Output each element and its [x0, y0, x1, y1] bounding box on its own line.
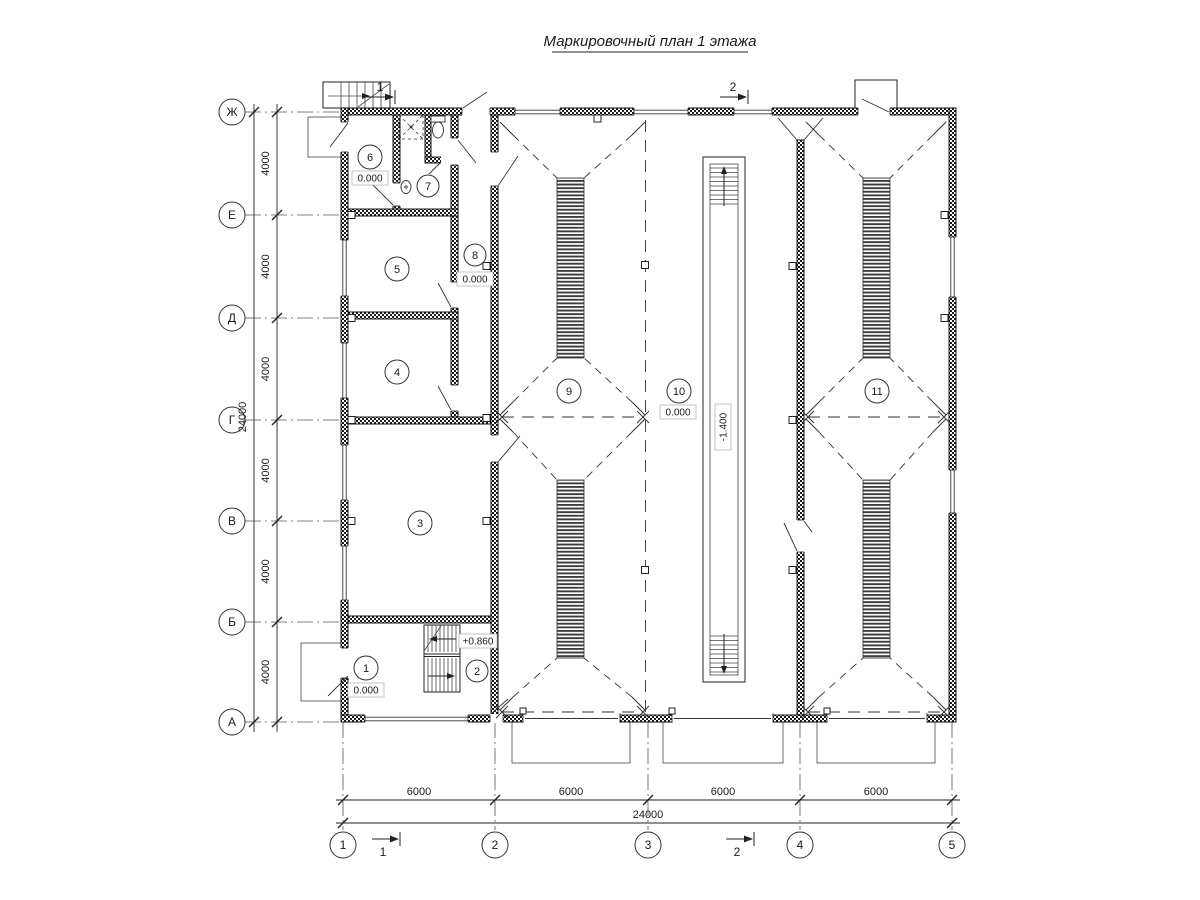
- window: [634, 107, 688, 116]
- room-tag-9: 9: [557, 379, 581, 403]
- svg-text:2: 2: [474, 666, 480, 678]
- svg-text:10: 10: [673, 386, 685, 398]
- door: [858, 99, 890, 116]
- svg-text:В: В: [228, 514, 236, 528]
- svg-text:0.000: 0.000: [462, 275, 487, 286]
- svg-text:2: 2: [730, 80, 737, 94]
- gate: [523, 713, 620, 723]
- svg-text:7: 7: [425, 181, 431, 193]
- svg-text:1: 1: [363, 663, 369, 675]
- dimensions-left: 4000 4000 4000 4000 4000 4000 24000: [237, 104, 282, 732]
- window: [365, 714, 468, 723]
- wall-row-b: [348, 616, 491, 623]
- door: [490, 152, 518, 186]
- wall-axis-2: [491, 115, 498, 715]
- svg-text:0.000: 0.000: [665, 408, 690, 419]
- axis-bubble-row-b: Б: [219, 609, 245, 635]
- axis-bubble-row-d: Д: [219, 305, 245, 331]
- toilet-icon: [431, 116, 445, 138]
- svg-text:9: 9: [566, 386, 572, 398]
- door: [372, 183, 401, 206]
- ramp-strip: [863, 178, 890, 358]
- shower-icon: [399, 115, 423, 139]
- svg-text:1: 1: [380, 845, 387, 859]
- svg-text:Ж: Ж: [226, 105, 237, 119]
- svg-text:0.000: 0.000: [357, 174, 382, 185]
- porch-bottom-left: [301, 643, 341, 701]
- svg-text:+0.860: +0.860: [463, 637, 494, 648]
- dim-bottom-total: 24000: [633, 809, 664, 821]
- trench-stair-top: [710, 166, 738, 206]
- svg-text:5: 5: [949, 838, 956, 852]
- door: [462, 92, 490, 116]
- dim-left-total: 24000: [237, 402, 249, 433]
- svg-text:Е: Е: [228, 208, 236, 222]
- section-mark-2-bottom: 2: [726, 832, 754, 859]
- drawing-title: Маркировочный план 1 этажа: [544, 33, 757, 52]
- dim-left-bay-6: 4000: [260, 660, 272, 684]
- dim-left-bay-4: 4000: [260, 458, 272, 482]
- room-tag-2: 2: [466, 660, 488, 682]
- wall-right: [949, 108, 956, 722]
- svg-text:3: 3: [417, 518, 423, 530]
- trench-stair-bottom: [710, 634, 738, 674]
- sink-icon: [401, 181, 411, 194]
- svg-text:Б: Б: [228, 615, 236, 629]
- window: [340, 445, 349, 500]
- axis-bubble-col-4: 4: [787, 832, 813, 858]
- dim-left-bay-2: 4000: [260, 254, 272, 278]
- window: [340, 343, 349, 398]
- gate: [827, 713, 927, 723]
- door: [438, 385, 459, 411]
- axis-bubble-row-e: Е: [219, 202, 245, 228]
- room-tag-6: 6: [358, 145, 382, 169]
- svg-text:6: 6: [367, 152, 373, 164]
- svg-text:-1.400: -1.400: [719, 412, 730, 441]
- svg-text:11: 11: [871, 386, 882, 398]
- door: [330, 122, 349, 152]
- room-tags: 1 2 3 4 5 6 7 8 9 10 11: [354, 145, 889, 682]
- wall-row-g: [348, 417, 491, 424]
- svg-text:2: 2: [734, 845, 741, 859]
- section-mark-1-bottom: 1: [372, 832, 400, 859]
- room-tag-5: 5: [385, 257, 409, 281]
- dim-bottom-bay-3: 6000: [711, 786, 735, 798]
- gate-apron-2: [663, 722, 783, 763]
- room-tag-1: 1: [354, 656, 378, 680]
- door: [490, 435, 520, 462]
- svg-text:1: 1: [340, 838, 347, 852]
- svg-text:2: 2: [492, 838, 499, 852]
- window: [948, 470, 957, 513]
- axis-bubble-row-zh: Ж: [219, 99, 245, 125]
- room-tag-4: 4: [385, 360, 409, 384]
- elevation-mark-room8: 0.000: [457, 272, 493, 286]
- wall-left: [341, 108, 348, 722]
- svg-text:4: 4: [797, 838, 804, 852]
- floor-plan-drawing: Маркировочный план 1 этажа Ж Е Д Г В Б А…: [0, 0, 1200, 900]
- window: [340, 546, 349, 600]
- room-tag-8: 8: [464, 244, 486, 266]
- window: [948, 237, 957, 297]
- svg-text:4: 4: [394, 367, 400, 379]
- porch-top-left: [308, 117, 341, 157]
- dim-bottom-bay-1: 6000: [407, 786, 431, 798]
- axis-bubble-row-v: В: [219, 508, 245, 534]
- inspection-trench: -1.400: [703, 157, 745, 682]
- gate-apron-3: [817, 722, 935, 763]
- axis-bubble-col-1: 1: [330, 832, 356, 858]
- door: [438, 282, 459, 308]
- dim-bottom-bay-4: 6000: [864, 786, 888, 798]
- axis-bubble-col-3: 3: [635, 832, 661, 858]
- elevation-mark-room1: 0.000: [348, 683, 384, 697]
- wall-row-e: [348, 209, 458, 216]
- axis-bubble-col-2: 2: [482, 832, 508, 858]
- svg-text:5: 5: [394, 264, 400, 276]
- svg-text:0.000: 0.000: [353, 686, 378, 697]
- room-tag-10: 10: [667, 379, 691, 403]
- section-mark-2-top: 2: [720, 80, 748, 104]
- elevation-mark-room10: 0.000: [660, 405, 696, 419]
- wall-row-d: [348, 312, 458, 319]
- dim-left-bay-5: 4000: [260, 559, 272, 583]
- room-tag-11: 11: [865, 379, 889, 403]
- axis-bubbles-cols: 1 2 3 4 5: [330, 832, 965, 858]
- ramp-strip: [557, 178, 584, 358]
- axis-bubble-row-a: А: [219, 709, 245, 735]
- window: [734, 107, 772, 116]
- elevation-mark-room6: 0.000: [352, 171, 388, 185]
- axis-bubble-col-5: 5: [939, 832, 965, 858]
- wall-shower: [425, 115, 431, 157]
- svg-text:8: 8: [472, 250, 478, 262]
- svg-text:1: 1: [377, 80, 384, 94]
- elevation-mark-room2: +0.860: [459, 634, 497, 648]
- room-tag-3: 3: [408, 511, 432, 535]
- dim-left-bay-3: 4000: [260, 357, 272, 381]
- door: [784, 520, 812, 552]
- dim-bottom-bay-2: 6000: [559, 786, 583, 798]
- ramp-strip: [863, 480, 890, 658]
- page-title: Маркировочный план 1 этажа: [544, 33, 757, 50]
- ramp-strip: [557, 480, 584, 658]
- stairwell: [424, 625, 460, 692]
- svg-text:Г: Г: [229, 413, 236, 427]
- dim-left-bay-1: 4000: [260, 151, 272, 175]
- wall-axis-4: [797, 140, 804, 715]
- window: [515, 107, 560, 116]
- room-tag-7: 7: [417, 175, 439, 197]
- svg-text:3: 3: [645, 838, 652, 852]
- svg-text:Д: Д: [228, 311, 236, 325]
- gate-apron-1: [512, 722, 630, 763]
- gate: [672, 713, 773, 723]
- window: [340, 240, 349, 296]
- door: [778, 118, 823, 140]
- svg-text:А: А: [228, 715, 236, 729]
- elevation-mark-pit: -1.400: [715, 404, 731, 450]
- column-markers: [348, 115, 948, 714]
